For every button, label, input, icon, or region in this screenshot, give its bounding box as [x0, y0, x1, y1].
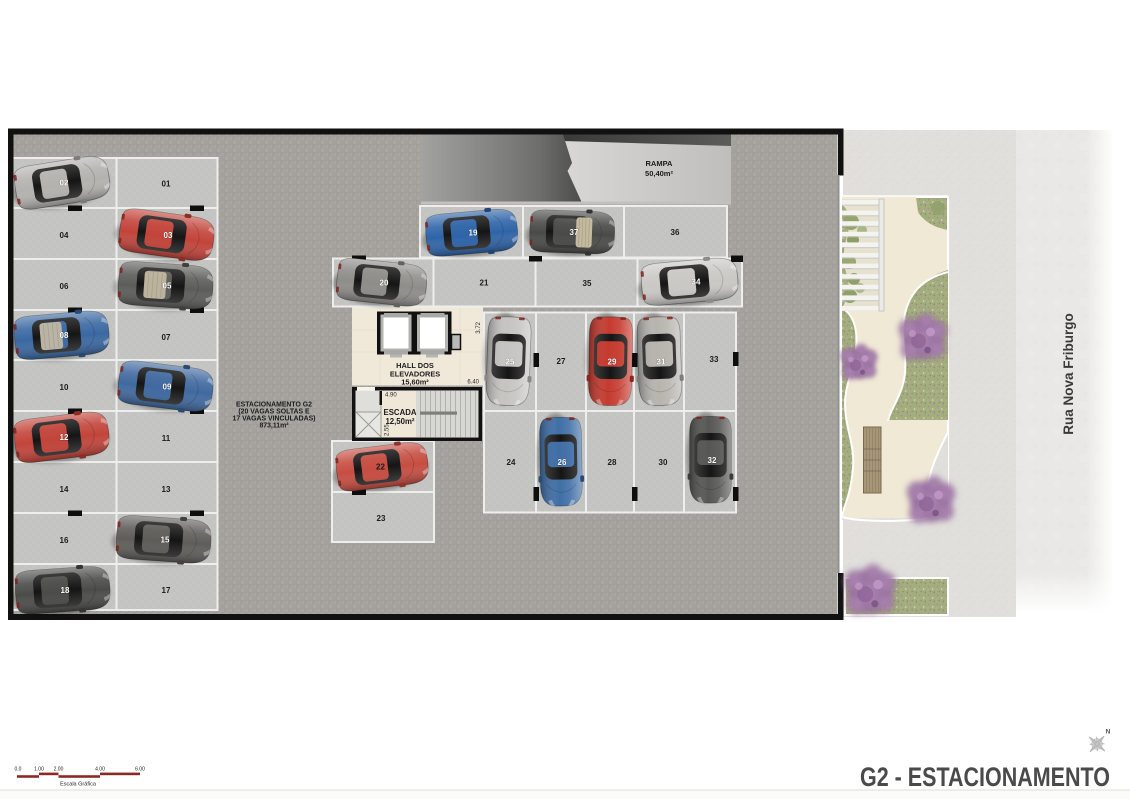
- svg-text:10: 10: [60, 383, 69, 392]
- svg-text:35: 35: [583, 279, 592, 288]
- svg-text:08: 08: [60, 331, 69, 340]
- svg-text:22: 22: [376, 463, 385, 472]
- svg-text:Escala Gráfica: Escala Gráfica: [60, 782, 97, 788]
- svg-text:04: 04: [60, 231, 69, 240]
- svg-text:28: 28: [608, 458, 617, 467]
- svg-text:19: 19: [469, 229, 478, 238]
- svg-text:37: 37: [570, 228, 579, 237]
- svg-text:27: 27: [557, 357, 566, 366]
- svg-text:0.0: 0.0: [15, 767, 22, 773]
- svg-text:25: 25: [506, 358, 515, 367]
- svg-text:05: 05: [163, 282, 172, 291]
- svg-text:09: 09: [163, 383, 172, 392]
- svg-text:30: 30: [659, 458, 668, 467]
- svg-text:6.00: 6.00: [135, 767, 145, 773]
- svg-text:N: N: [1106, 729, 1111, 736]
- svg-text:01: 01: [162, 180, 171, 189]
- svg-text:(20 VAGAS SOLTAS E: (20 VAGAS SOLTAS E: [238, 409, 310, 416]
- svg-text:06: 06: [60, 282, 69, 291]
- svg-text:G2 - ESTACIONAMENTO: G2 - ESTACIONAMENTO: [860, 762, 1110, 792]
- svg-text:13: 13: [162, 485, 171, 494]
- svg-text:RAMPA: RAMPA: [646, 159, 674, 168]
- svg-text:36: 36: [671, 228, 680, 237]
- svg-text:26: 26: [558, 458, 567, 467]
- svg-text:4.00: 4.00: [95, 767, 105, 773]
- svg-text:14: 14: [60, 485, 69, 494]
- svg-text:ESCADA: ESCADA: [384, 408, 417, 417]
- svg-text:17: 17: [162, 586, 171, 595]
- svg-text:1.00: 1.00: [34, 767, 44, 773]
- svg-text:31: 31: [657, 358, 666, 367]
- svg-text:03: 03: [164, 231, 173, 240]
- svg-text:2.00: 2.00: [54, 767, 64, 773]
- svg-text:21: 21: [480, 279, 489, 288]
- svg-text:32: 32: [708, 456, 717, 465]
- svg-text:4.90: 4.90: [385, 393, 397, 399]
- svg-text:50,40m²: 50,40m²: [645, 169, 673, 178]
- svg-text:20: 20: [380, 279, 389, 288]
- svg-text:15,60m²: 15,60m²: [401, 378, 429, 387]
- svg-text:Rua Nova Friburgo: Rua Nova Friburgo: [1061, 313, 1076, 435]
- svg-text:18: 18: [61, 586, 70, 595]
- svg-text:12: 12: [60, 433, 69, 442]
- svg-text:29: 29: [608, 358, 617, 367]
- svg-text:23: 23: [377, 514, 386, 523]
- svg-text:873,11m²: 873,11m²: [259, 423, 289, 430]
- svg-text:33: 33: [710, 355, 719, 364]
- svg-text:07: 07: [162, 333, 171, 342]
- svg-text:15: 15: [161, 536, 170, 545]
- svg-text:11: 11: [162, 434, 171, 443]
- svg-text:2.55: 2.55: [385, 424, 391, 436]
- svg-text:16: 16: [60, 536, 69, 545]
- svg-text:34: 34: [692, 278, 701, 287]
- svg-text:17 VAGAS VINCULADAS): 17 VAGAS VINCULADAS): [233, 416, 316, 423]
- svg-text:6.40: 6.40: [467, 380, 479, 386]
- svg-text:02: 02: [60, 179, 69, 188]
- svg-text:24: 24: [507, 458, 516, 467]
- svg-text:ESTACIONAMENTO G2: ESTACIONAMENTO G2: [236, 402, 312, 409]
- svg-text:3.72: 3.72: [476, 321, 482, 333]
